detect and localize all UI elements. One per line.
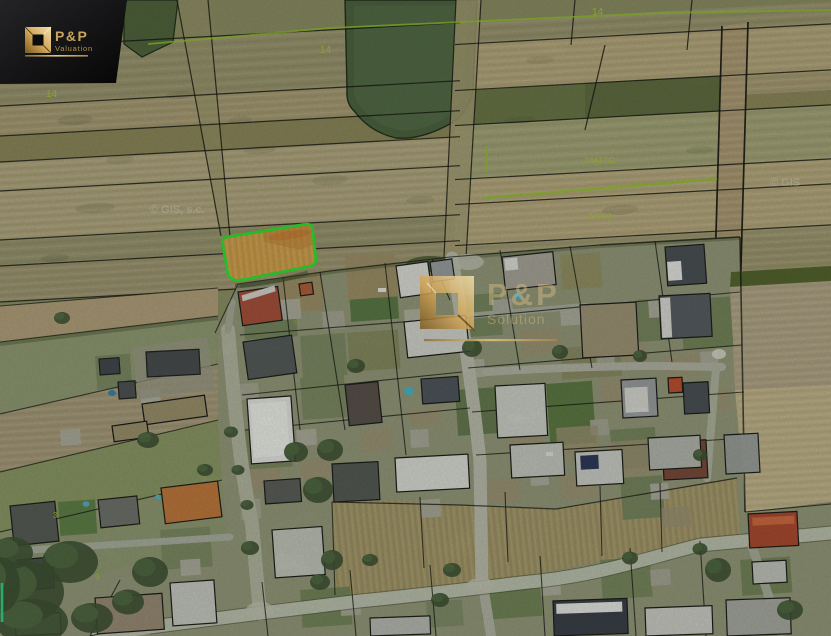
- svg-text:Valuation: Valuation: [55, 44, 93, 53]
- svg-text:P&P: P&P: [487, 277, 560, 312]
- svg-text:Solution: Solution: [487, 311, 546, 327]
- svg-text:P&P: P&P: [55, 28, 88, 44]
